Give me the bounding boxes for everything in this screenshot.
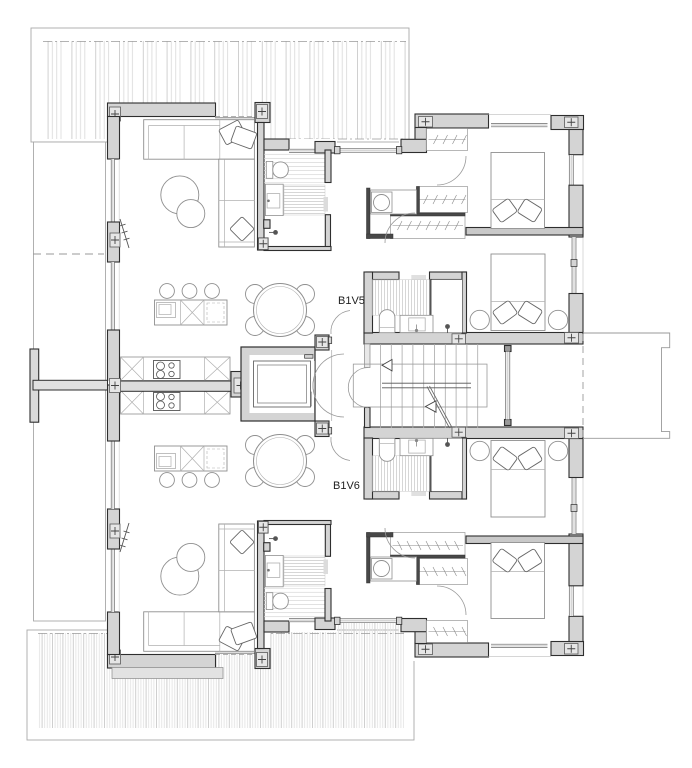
svg-text:B1V6: B1V6 [333,480,360,492]
svg-text:B1V5: B1V5 [338,295,365,307]
